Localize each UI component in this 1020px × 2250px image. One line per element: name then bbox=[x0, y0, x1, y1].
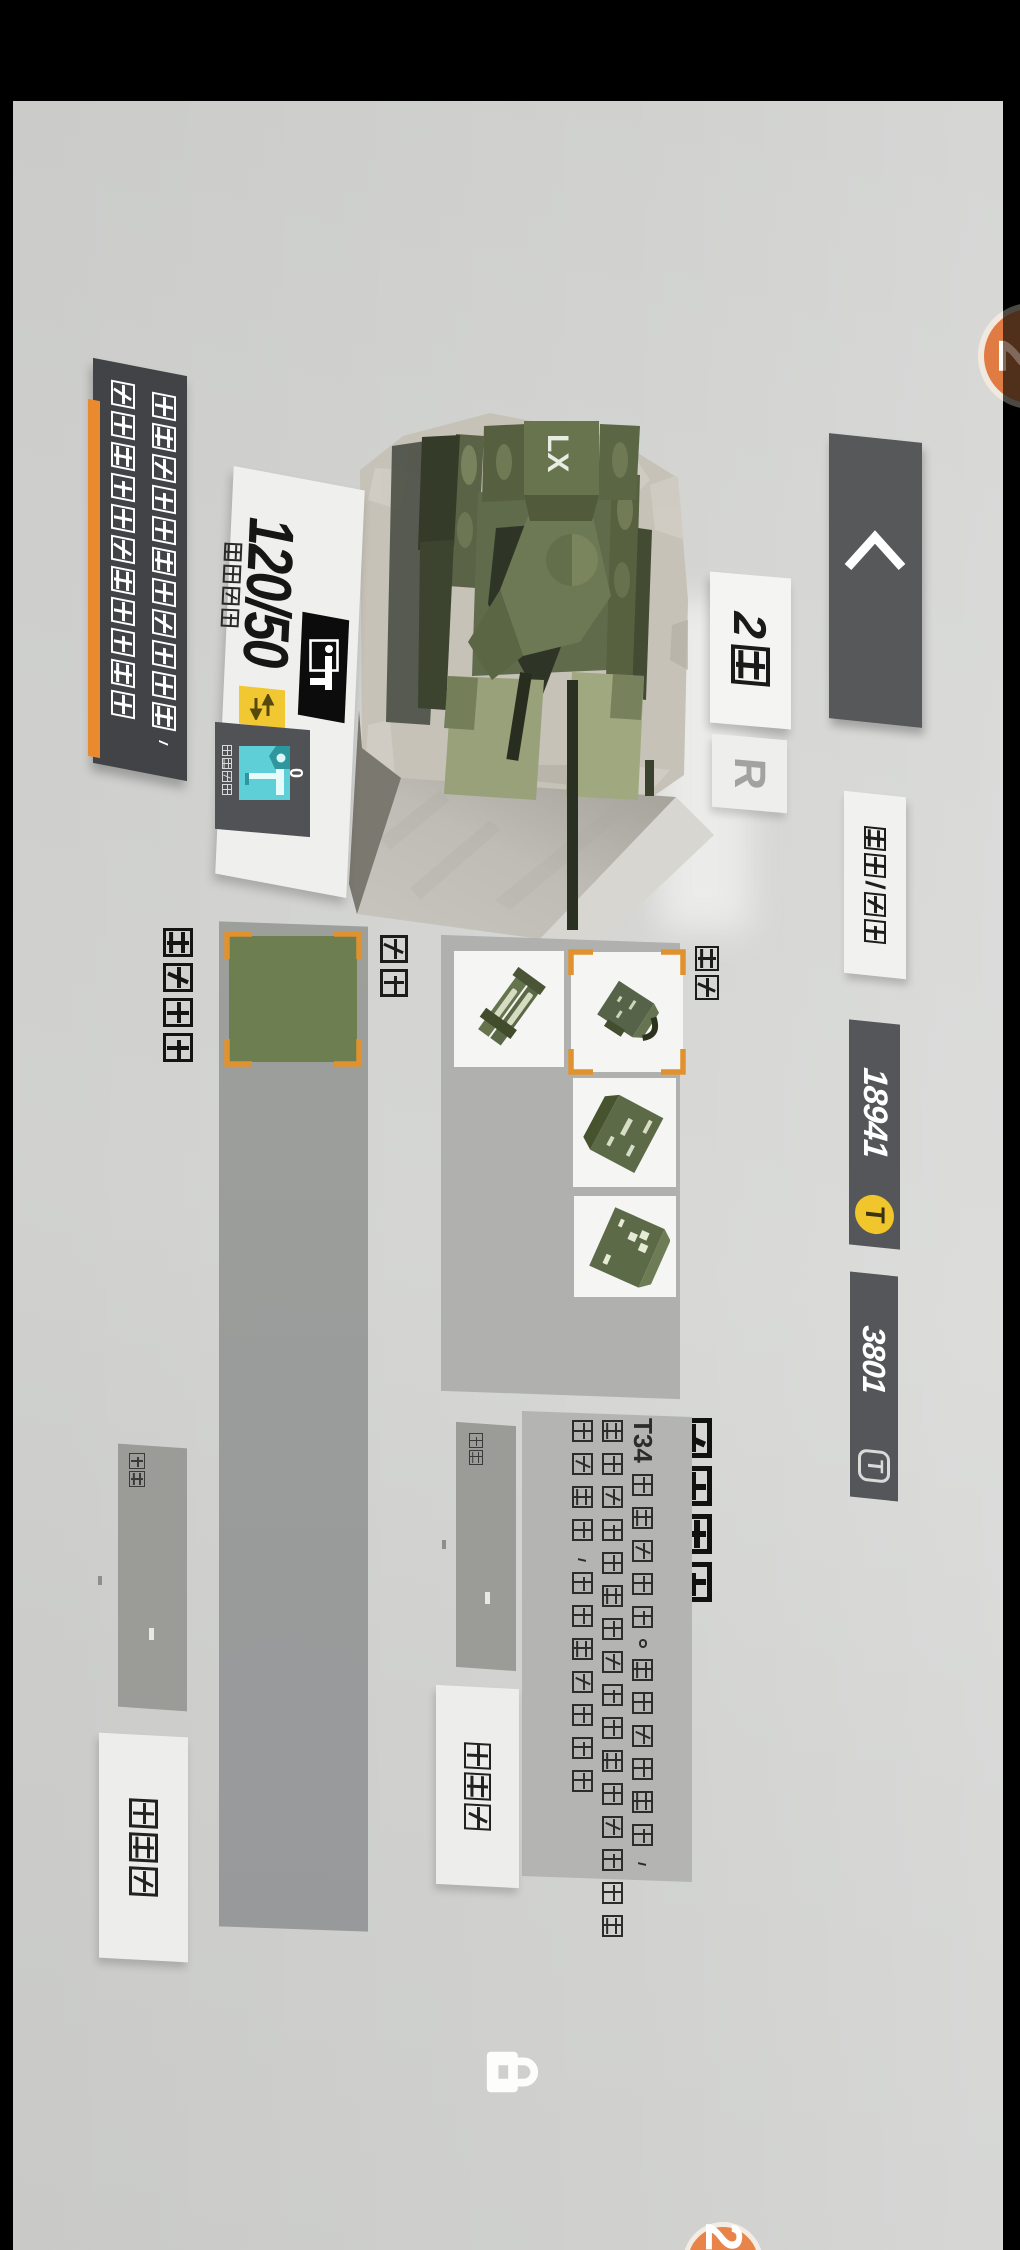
svg-text:LX: LX bbox=[541, 434, 574, 472]
